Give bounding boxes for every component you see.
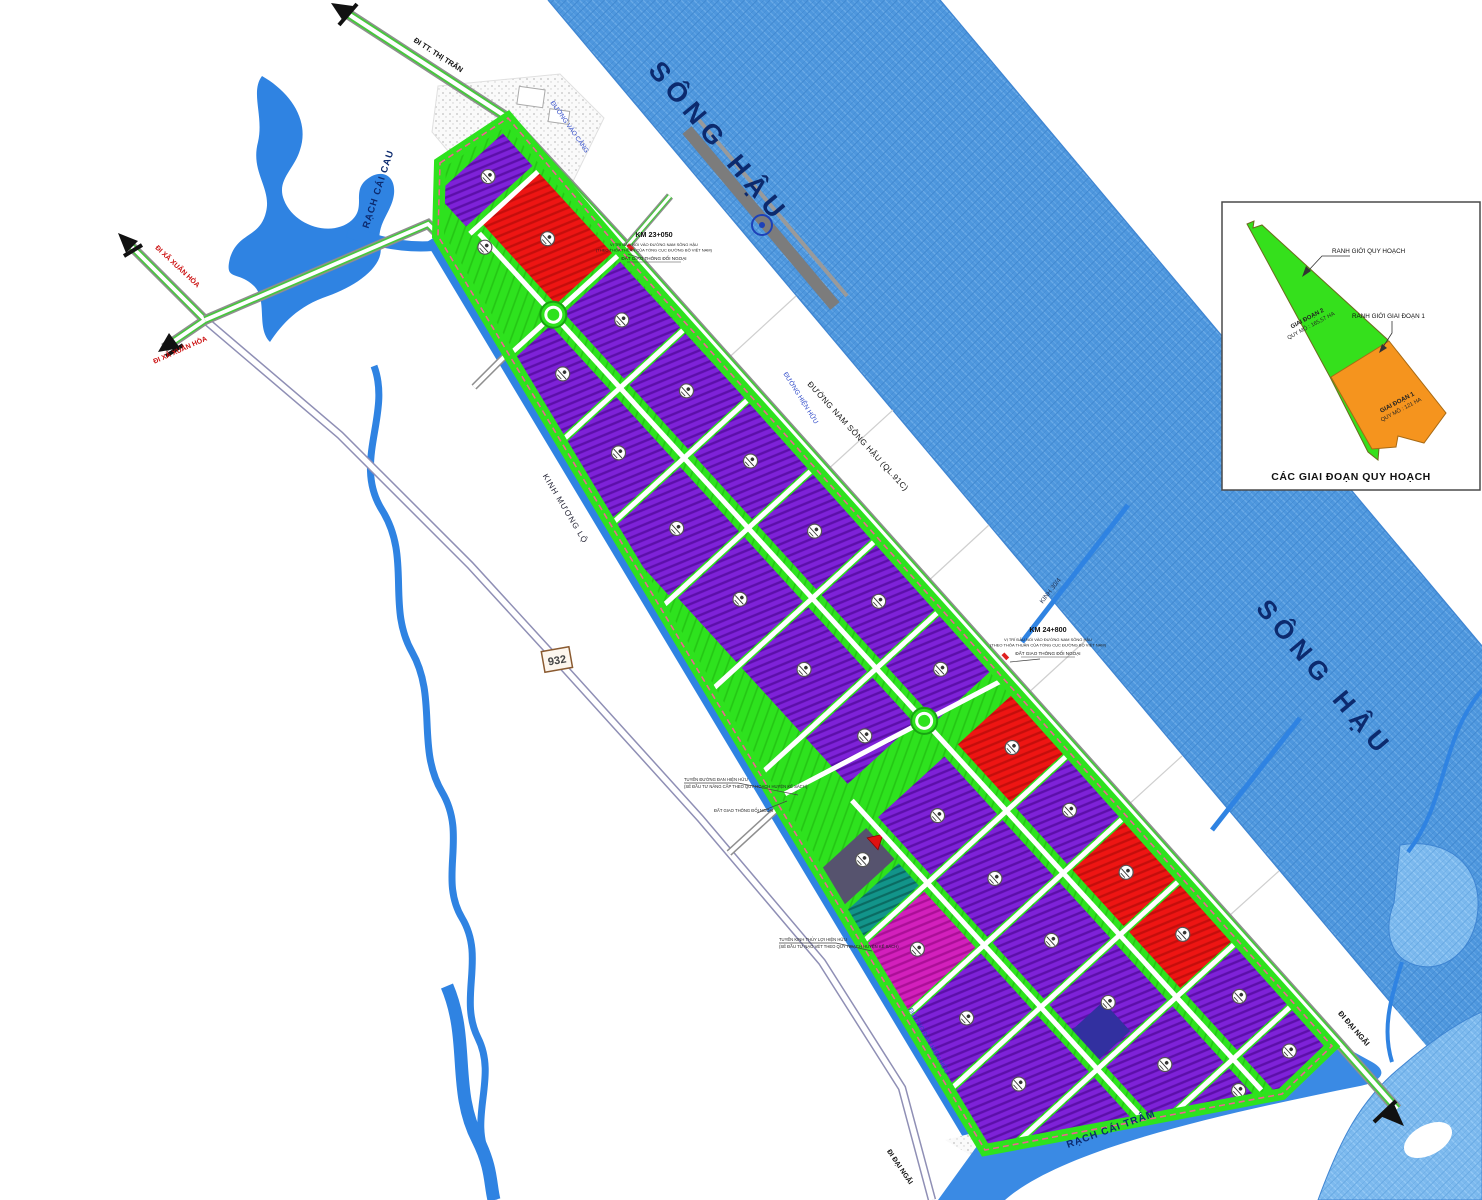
- km24-line2: (THEO THỎA THUẬN CỦA TỔNG CỤC ĐƯỜNG BỘ V…: [990, 643, 1107, 648]
- legend-box: RANH GIỚI QUY HOẠCH RANH GIỚI GIAI ĐOẠN …: [1222, 202, 1480, 490]
- canal-note-line1: TUYẾN KINH THỦY LỢI HIỆN HỮU: [779, 937, 847, 942]
- canal-note-line2: (SẼ ĐẦU TƯ NẠO VÉT THEO QUY HOẠCH HUYỆN …: [779, 944, 899, 949]
- existing-building: [517, 86, 545, 107]
- legend-title: CÁC GIAI ĐOẠN QUY HOẠCH: [1271, 470, 1430, 483]
- route-badge-932: 932: [541, 647, 572, 673]
- legend-boundary-p1-label: RANH GIỚI GIAI ĐOẠN 1: [1352, 311, 1425, 320]
- legend-boundary-all-label: RANH GIỚI QUY HOẠCH: [1332, 246, 1406, 255]
- km24-title: KM 24+800: [1029, 625, 1066, 634]
- bridge-note2: ĐẤT GIAO THÔNG ĐỐI NGOẠI: [714, 808, 773, 813]
- bridge-note-line1: TUYẾN ĐƯỜNG ĐAN HIỆN HỮU: [684, 777, 748, 782]
- planning-map: 932 SÔNG HẬU SÔNG HẬU RẠCH CÁI CAU KINH …: [0, 0, 1482, 1200]
- km24-line1: VỊ TRÍ ĐẤU NỐI VÀO ĐƯỜNG NAM SÔNG HẬU: [1004, 637, 1092, 642]
- km23-line3: ĐẤT GIAO THÔNG ĐỐI NGOẠI: [621, 255, 686, 261]
- km23-title: KM 23+050: [635, 230, 672, 239]
- km23-line1: VỊ TRÍ ĐẤU NỐI VÀO ĐƯỜNG NAM SÔNG HẬU: [610, 242, 698, 247]
- km23-line2: (THEO THỎA THUẬN CỦA TỔNG CỤC ĐƯỜNG BỘ V…: [596, 248, 713, 253]
- km24-line3: ĐẤT GIAO THÔNG ĐỐI NGOẠI: [1015, 650, 1080, 656]
